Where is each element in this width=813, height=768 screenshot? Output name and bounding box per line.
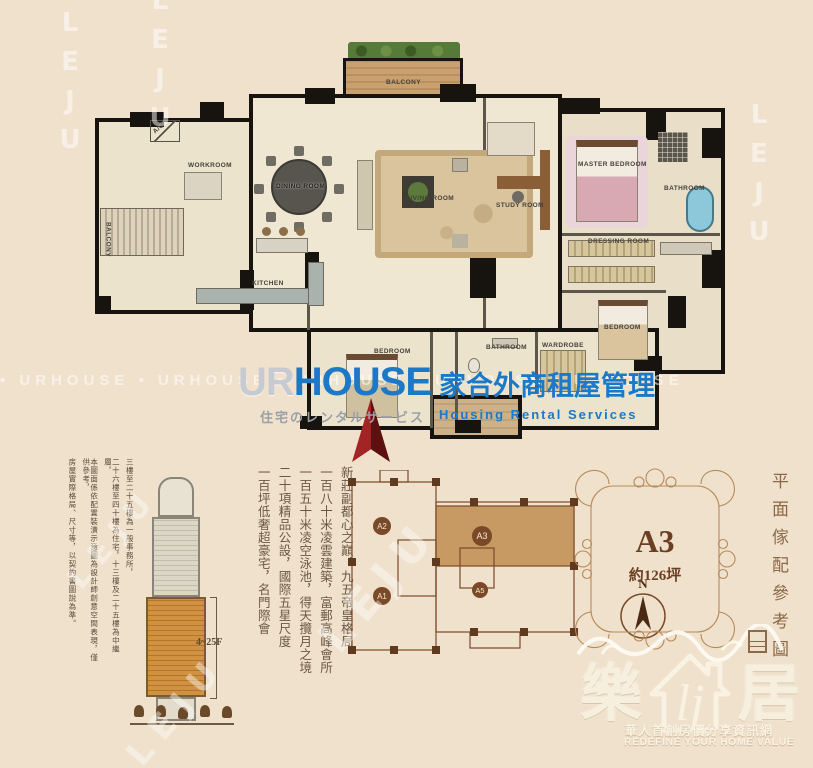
room-label-bedroom-right: BEDROOM (604, 325, 641, 332)
sofa (357, 160, 373, 230)
flyer-canvas: BALCONY A/C WORKROOM BALCONY KITCHEN DIN… (0, 0, 813, 768)
workroom-bed (184, 172, 222, 200)
keyplan-unit-a2: A2 (377, 522, 387, 531)
marketing-col-4: 二十項精品公設，國際五星尺度 (276, 466, 290, 676)
room-label-balcony-left: BALCONY (104, 222, 111, 257)
unit-name: A3 (635, 523, 674, 559)
floors-range-label: 4~25F (196, 637, 222, 648)
unit-area: 約126坪 (629, 566, 682, 584)
tv-cabinet (540, 150, 550, 230)
dining-chairs (294, 146, 304, 156)
room-label-master-bath: BATHROOM (664, 186, 705, 193)
room-label-dining: DINING ROOM (276, 184, 325, 191)
marketing-col-5: 一百坪低奢超豪宅，名門際會 (255, 466, 269, 676)
dressing-closet-2 (568, 266, 655, 283)
room-label-dressing: DRESSING ROOM (588, 239, 649, 246)
kitchen-island (256, 238, 308, 253)
kitchen-counter-2 (308, 262, 324, 306)
room-label-workroom: WORKROOM (188, 163, 232, 170)
entry-steps (100, 208, 184, 256)
study-desk (497, 176, 543, 189)
leju-watermark: LEJU (744, 100, 774, 256)
room-label-master: MASTER BEDROOM (578, 162, 647, 169)
room-label-balcony-top: BALCONY (386, 80, 421, 87)
keyplan-unit-a3: A3 (476, 531, 487, 541)
logo-char-le: 樂 (580, 664, 642, 726)
leju-watermark: LEJU (145, 0, 175, 142)
kitchen-counter (196, 288, 324, 304)
logo-char-ju: 居 (738, 664, 800, 726)
urhouse-chinese-text: 家合外商租屋管理 (439, 364, 655, 403)
tower-crown (158, 477, 194, 517)
marketing-col-3: 一百五十米凌空泳池，得天攬月之境 (297, 466, 311, 676)
urhouse-english-text: Housing Rental Services (439, 407, 637, 426)
room-label-kitchen: KITCHEN (252, 281, 284, 288)
shower (658, 132, 688, 162)
keyplan-unit-a5: A5 (475, 586, 484, 595)
room-label-bath-mid: BATHROOM (486, 345, 527, 352)
room-label-bedroom-mid: BEDROOM (374, 349, 411, 356)
seal-icon (748, 630, 767, 653)
bathtub (686, 186, 714, 232)
trees (134, 705, 144, 717)
leju-watermark: LEJU (55, 8, 85, 164)
room-label-wardrobe: WARDROBE (542, 343, 584, 350)
double-vanity (660, 242, 712, 255)
leju-logo: 樂 居 lj 華人首創房價分享資訊網 REDEFINE YOUR HOME VA… (572, 624, 810, 764)
urhouse-ur-text: UR (238, 360, 294, 405)
room-label-living: LIVING ROOM (406, 196, 454, 203)
urhouse-japanese-text: 住宅のレンタルサービス (260, 407, 425, 426)
bar-stools (262, 227, 271, 236)
room-label-study: STUDY ROOM (496, 203, 544, 210)
urhouse-watermark: URHOUSE 家合外商租屋管理 住宅のレンタルサービス Housing Ren… (238, 360, 655, 426)
study-bed (487, 122, 535, 156)
tower-upper (152, 517, 200, 597)
logo-tagline-en: REDEFINE YOUR HOME VALUE (624, 736, 774, 748)
armchairs (452, 158, 468, 172)
master-bed (576, 140, 638, 222)
urhouse-house-text: HOUSE (294, 360, 431, 405)
